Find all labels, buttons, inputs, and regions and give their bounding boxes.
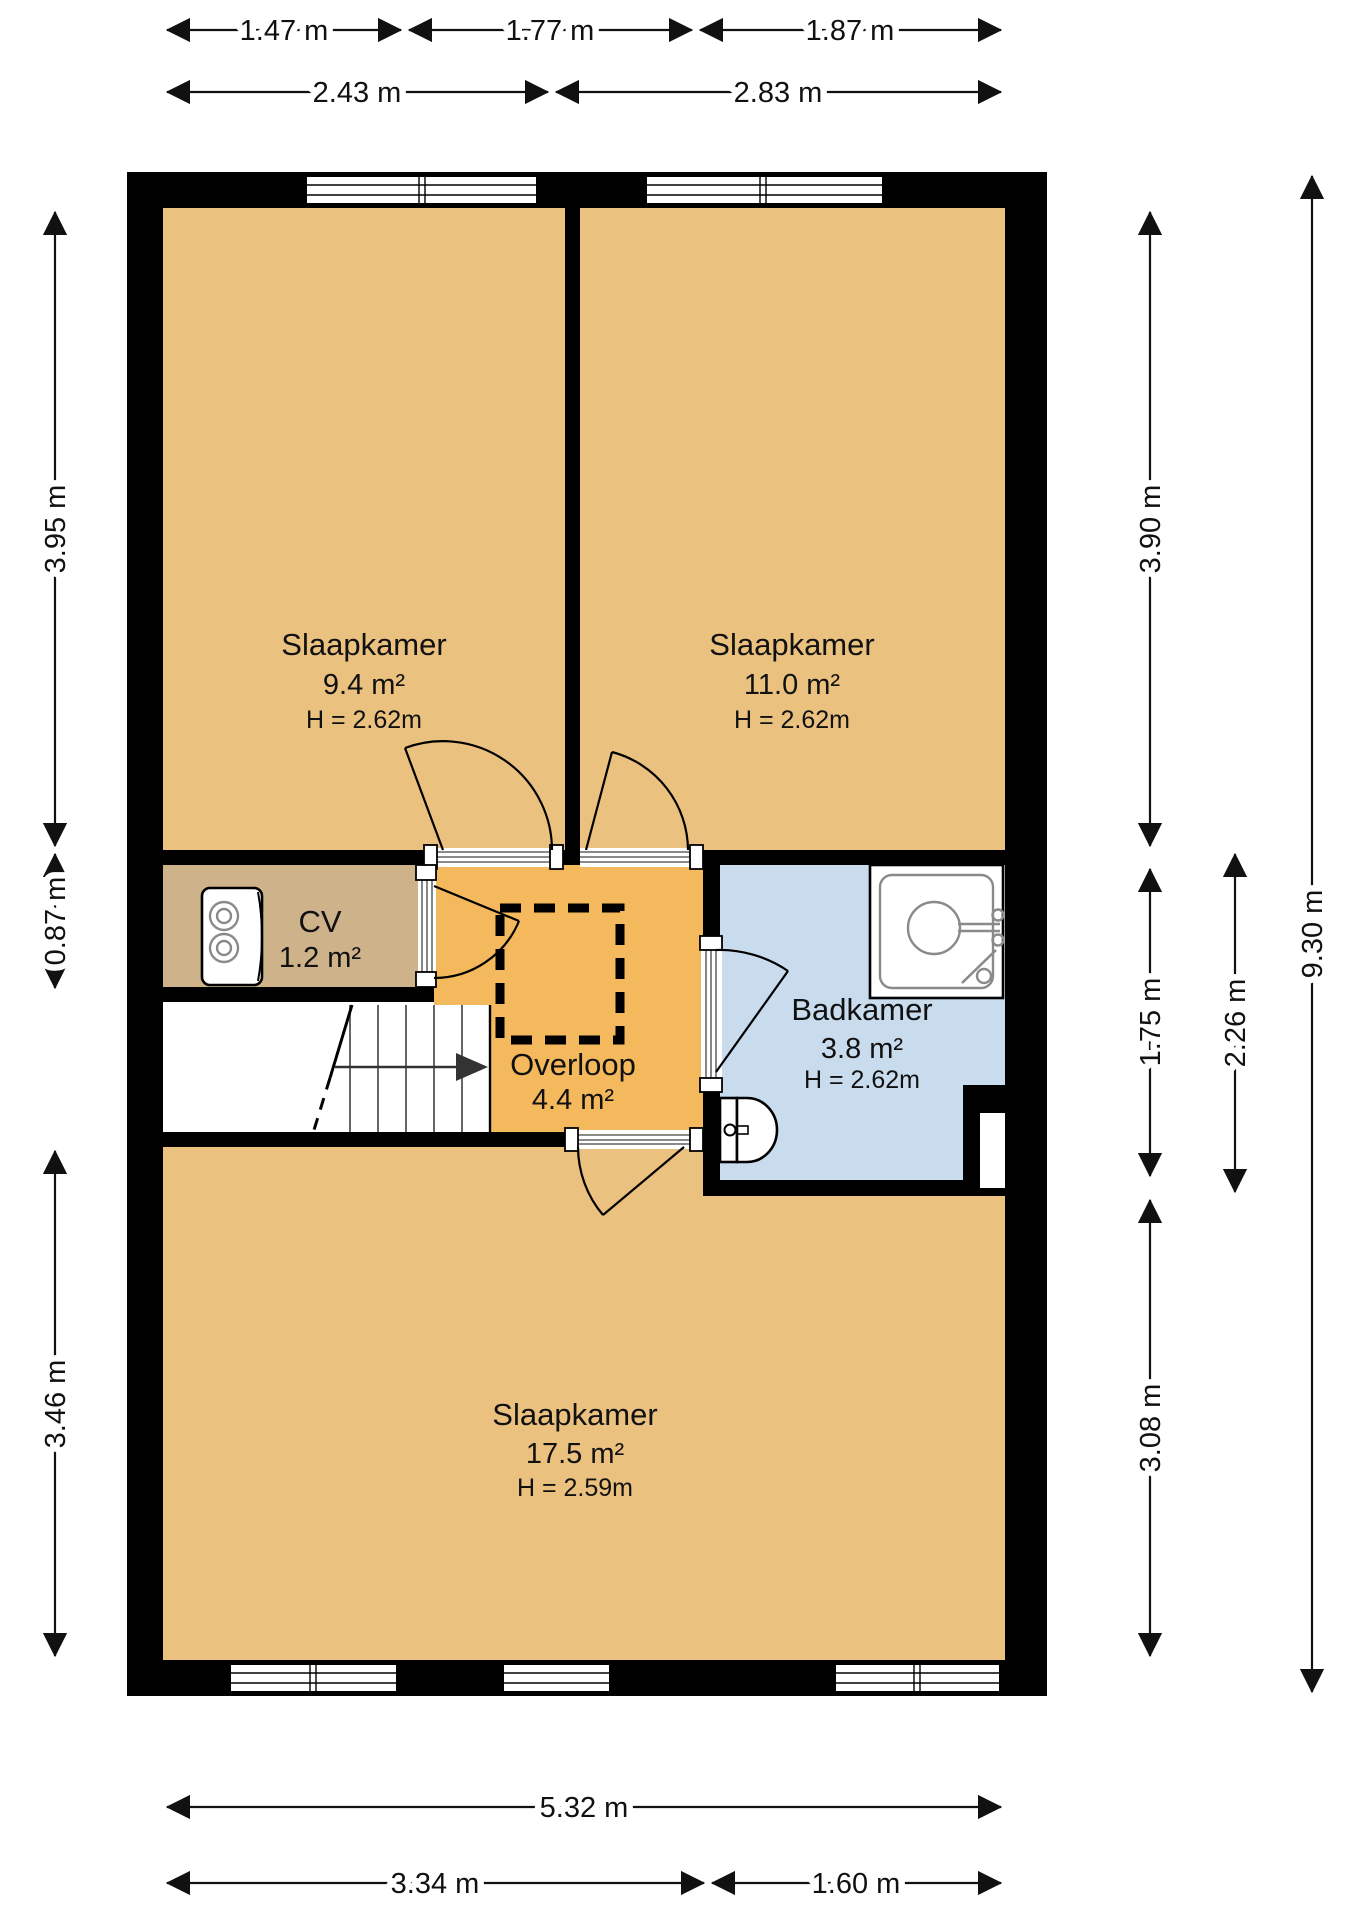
dimension-label: 1.87 m bbox=[806, 15, 895, 47]
window-top-2 bbox=[646, 176, 883, 204]
dimension-label: 3.95 m bbox=[40, 485, 72, 574]
room-area: 3.8 m² bbox=[821, 1033, 904, 1065]
door-jamb bbox=[700, 1078, 722, 1092]
dimension-label: 2.43 m bbox=[313, 77, 402, 109]
dimension-label: 2.26 m bbox=[1220, 979, 1252, 1068]
dimension-label: 2.83 m bbox=[734, 77, 823, 109]
window-bottom-2 bbox=[503, 1664, 610, 1692]
door-jamb bbox=[416, 865, 436, 880]
room-name: Slaapkamer bbox=[492, 1397, 657, 1432]
wall-niche-top bbox=[980, 1085, 1005, 1113]
room-area: 9.4 m² bbox=[323, 669, 406, 701]
room-name: Badkamer bbox=[791, 992, 932, 1027]
dimension-label: 0.87 m bbox=[40, 877, 72, 966]
window-bottom-3 bbox=[835, 1664, 1000, 1692]
shower-icon bbox=[870, 865, 1004, 998]
dimension-label: 1.60 m bbox=[812, 1868, 901, 1900]
room-name: Overloop bbox=[510, 1047, 636, 1082]
floor-plan-page: Slaapkamer 9.4 m² H = 2.62m Slaapkamer 1… bbox=[0, 0, 1358, 1920]
room-area: 11.0 m² bbox=[744, 669, 841, 701]
window-bottom-1 bbox=[230, 1664, 397, 1692]
floor-plan-canvas: Slaapkamer 9.4 m² H = 2.62m Slaapkamer 1… bbox=[0, 0, 1358, 1920]
dimension-label: 1.77 m bbox=[506, 15, 595, 47]
dimension-label: 1.47 m bbox=[240, 15, 329, 47]
dimension-label: 1.75 m bbox=[1135, 978, 1167, 1067]
room-area: 17.5 m² bbox=[526, 1438, 625, 1470]
room-name: Slaapkamer bbox=[281, 627, 446, 662]
boiler-icon bbox=[202, 888, 262, 985]
dimension-label: 3.34 m bbox=[391, 1868, 480, 1900]
dimension-label: 9.30 m bbox=[1297, 890, 1329, 979]
dimension-label: 3.08 m bbox=[1135, 1384, 1167, 1473]
door-jamb bbox=[690, 845, 703, 869]
wall-left bbox=[127, 172, 163, 1696]
door-jamb bbox=[565, 1128, 578, 1151]
room-slaapkamer-topleft bbox=[163, 208, 565, 865]
dimension-label: 5.32 m bbox=[540, 1792, 629, 1824]
room-ceiling-height: H = 2.62m bbox=[804, 1066, 920, 1094]
door-jamb bbox=[416, 972, 436, 987]
room-name: Slaapkamer bbox=[709, 627, 874, 662]
wall-bedroom-divider bbox=[565, 208, 580, 865]
wall-niche-left bbox=[963, 1085, 980, 1196]
door-jamb bbox=[700, 936, 722, 950]
window-top-1 bbox=[306, 176, 537, 204]
room-area: 4.4 m² bbox=[532, 1084, 615, 1116]
room-ceiling-height: H = 2.59m bbox=[517, 1474, 633, 1502]
dimension-label: 3.46 m bbox=[40, 1360, 72, 1449]
toilet-icon bbox=[720, 1098, 777, 1162]
niche-recess bbox=[980, 1113, 1005, 1188]
room-ceiling-height: H = 2.62m bbox=[734, 706, 850, 734]
wall-top bbox=[127, 172, 1047, 208]
door-jamb bbox=[690, 1128, 703, 1151]
room-name: CV bbox=[298, 904, 341, 939]
dimension-label: 3.90 m bbox=[1135, 485, 1167, 574]
room-ceiling-height: H = 2.62m bbox=[306, 706, 422, 734]
stairs bbox=[163, 1005, 490, 1132]
stairwell bbox=[163, 1005, 490, 1132]
wall-niche-bottom bbox=[980, 1188, 1005, 1196]
room-area: 1.2 m² bbox=[279, 942, 362, 974]
wall-cv-bottom bbox=[163, 987, 434, 1002]
wall-badkamer-bottom bbox=[703, 1180, 1005, 1196]
wall-right bbox=[1005, 172, 1047, 1696]
